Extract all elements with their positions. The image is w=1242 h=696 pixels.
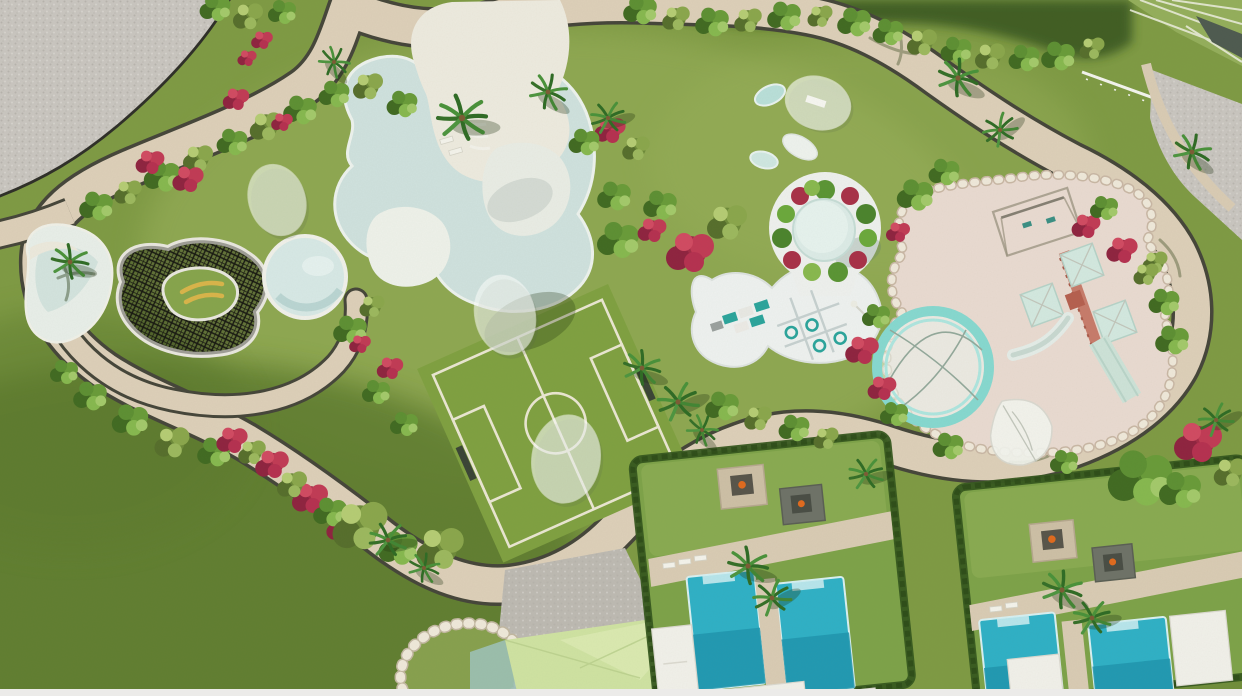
grain-overlay — [0, 0, 1242, 696]
bottom-strip — [0, 689, 1242, 696]
masterplan-rendering: Aerial 3D rendering — resort amenity par… — [0, 0, 1242, 696]
rendering-canvas: Aerial 3D rendering — resort amenity par… — [0, 0, 1242, 696]
